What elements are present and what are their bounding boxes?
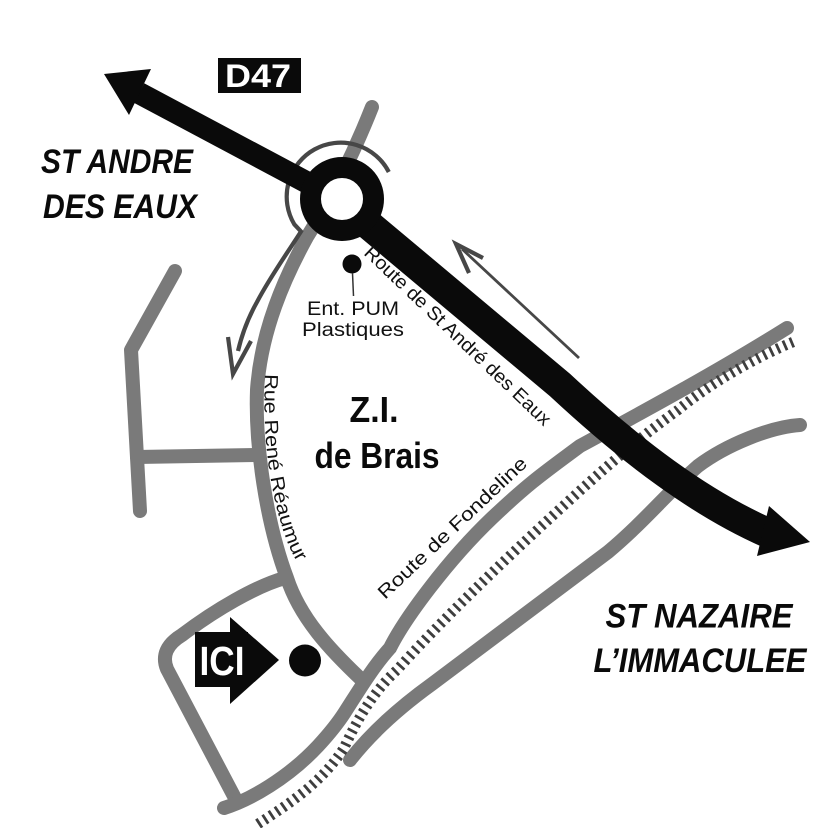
svg-text:ST NAZAIRE: ST NAZAIRE — [606, 598, 794, 636]
svg-text:Z.I.: Z.I. — [350, 389, 399, 430]
svg-text:L’IMMACULEE: L’IMMACULEE — [594, 642, 808, 680]
svg-text:Ent. PUM: Ent. PUM — [307, 299, 399, 320]
svg-text:ST ANDRE: ST ANDRE — [41, 143, 194, 181]
svg-text:ICI: ICI — [200, 638, 245, 684]
svg-text:de Brais: de Brais — [315, 435, 440, 476]
svg-text:Plastiques: Plastiques — [302, 320, 404, 341]
svg-text:DES EAUX: DES EAUX — [43, 188, 199, 226]
svg-text:D47: D47 — [225, 58, 291, 94]
